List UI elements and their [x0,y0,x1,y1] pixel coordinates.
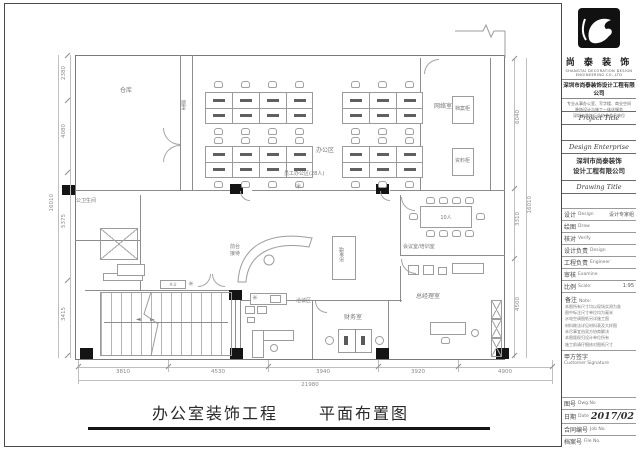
column-block [62,185,75,195]
row-job-no: 合同编号 Job No. [562,423,636,435]
row-engineer: 工程负责 Engineer [562,256,636,268]
chair [241,128,250,135]
row-label-en: Customer Signature [564,361,609,366]
row-label-en: Examine [578,272,598,277]
chair [426,230,435,237]
row-design: 设计 Design 设计专家组 [562,208,636,220]
row-examine: 审核 Examine [562,268,636,280]
dim-label: 3940 [316,370,330,376]
chair [214,128,223,135]
desk-divider [355,329,356,353]
enterprise-name: 深圳市尚泰装饰 设计工程有限公司 [562,154,636,180]
chair-row [205,128,313,135]
row-label: 设计负责 [564,246,588,255]
chair [325,336,334,345]
dim-total-label: 16010 [50,194,56,212]
room-label-office: 办公区 [316,148,334,155]
chair [270,344,278,352]
room-label-meeting: 会议室/培训室 [403,245,435,251]
fan-icon: ✳ [188,281,194,288]
chair [351,81,360,88]
monitor [361,336,365,345]
chair [441,337,450,344]
chair [241,181,250,188]
row-label-en: Design [578,212,594,217]
chair-row [342,81,423,88]
column-block [80,348,93,359]
row-label-en: Scale: [578,284,592,289]
row-label-en: Engineer [590,260,610,265]
row-scale: 比例 Scale: 1:95 [562,280,636,292]
brand-name: 尚 泰 装 饰 [562,55,636,68]
sink [270,295,281,303]
wall [400,255,505,256]
chair [439,230,448,237]
cabinet [491,300,502,319]
notes-label-en: Note: [579,299,591,304]
chair [268,128,277,135]
enterprise-line: 深圳市尚泰装饰 [562,157,636,167]
row-label-en: File No. [584,439,600,444]
title-underline [88,427,490,430]
room-label-corridor: 走廊 [182,100,188,110]
desk-bank [342,92,423,124]
room-label-network: 网络室 [434,104,452,111]
wall [75,190,238,191]
chair-row [205,137,313,144]
armchair [245,306,255,314]
equipment-unit: A.U [160,280,186,289]
row-label: 审核 [564,270,576,279]
row-label-en: Draw [578,224,590,229]
wall [490,58,491,190]
armchair [423,265,434,275]
conference-table: 10人 [420,206,472,228]
dim-label: 3310 [516,212,522,226]
chair [214,81,223,88]
stair-arrow-left-icon: ◄ [136,317,141,323]
desk-bank [205,92,313,124]
dim-label: 4530 [211,370,225,376]
row-label: 合同编号 [564,425,588,434]
chair [375,336,384,345]
cabinet-label: 资料柜 [455,159,470,165]
row-signature: 甲方签字 Customer Signature [562,350,636,367]
drawing-title: 办公室装饰工程 平面布置图 [0,400,561,424]
side-table [117,264,145,276]
brand-logo-area: 尚 泰 装 饰 SHANGTAI DECORATION DESIGN ENGIN… [562,3,636,111]
fan-icon: ✳ [252,295,258,302]
date-value: 2017/02 [591,411,634,422]
staircase [100,292,232,356]
row-label: 图号 [564,399,576,408]
room-label-reception: 前台 [230,245,240,251]
chair [405,81,414,88]
project-name: 办公室装饰工程 [152,404,278,423]
wall [85,290,235,291]
room-label-logo-wall: 形象墙 [340,247,346,262]
dim-label: 4080 [62,124,68,138]
chair [295,137,304,144]
chair [351,128,360,135]
row-value: 设计专家组 [606,211,634,218]
chair [465,197,474,204]
chair [378,128,387,135]
row-label-en: Verify [578,236,591,241]
row-dwg-no: 图号 Dwg.No [562,397,636,409]
dim-total-label: 16010 [528,196,534,214]
armchair [257,306,267,314]
chair [214,137,223,144]
row-label-en: Date [578,414,589,419]
room-label-storage: 仓库 [120,88,132,95]
cabinet [491,338,502,357]
row-label: 工程负责 [564,258,588,267]
dim-label: 2380 [62,66,68,80]
wall [390,190,505,191]
dimension-line [58,55,59,358]
chair [351,181,360,188]
chair [378,81,387,88]
chair [295,81,304,88]
chair-row [205,81,313,88]
dimension-line [78,367,552,368]
chair [426,197,435,204]
row-label: 档案号 [564,437,582,446]
fan-icon: ✳ [295,183,302,191]
row-label: 设计 [564,210,576,219]
row-verify: 核对 Verify [562,232,636,244]
wall [180,55,181,191]
wall [312,300,313,359]
wall [400,266,401,302]
chair [268,81,277,88]
dim-label: 3415 [62,307,68,321]
column-block [376,348,389,359]
drawing-title-box [562,194,636,208]
row-label-en: Dwg.No [578,401,596,406]
chair [405,181,414,188]
chair-row [342,128,423,135]
chair [214,181,223,188]
section-header-drawing: Drawing Title [562,180,636,194]
dim-label: 4500 [516,297,522,311]
dimension-line [78,380,552,381]
chair [378,181,387,188]
room-label-reception2: 接待 [230,252,240,258]
elevator [100,228,138,260]
brand-logo [577,7,621,49]
chair [241,137,250,144]
drawing-name: 平面布置图 [319,404,409,423]
enterprise-line: 设计工程有限公司 [562,167,636,177]
row-label-en: Job No. [590,427,606,432]
chair [268,137,277,144]
notes-header: 备注 Note: [565,295,633,304]
chair [295,128,304,135]
stool [471,329,479,337]
row-date: 日期 Date 2017/02 [562,409,636,423]
dim-total-label: 21980 [301,383,319,389]
equipment-label: A.U [170,282,177,287]
chair [409,213,418,220]
dim-label: 3920 [411,370,425,376]
dim-label: 6040 [516,110,522,124]
room-label-office-count: 员工办公区(28人) [284,172,324,178]
room-label-gm: 总经理室 [416,294,440,301]
table-capacity-label: 10人 [440,214,451,221]
coffee-table [438,267,447,275]
l-desk [252,330,264,358]
section-header-enterprise: Design Enterprise [562,140,636,154]
dim-label: 4900 [498,370,512,376]
dimension-line [70,55,71,358]
cabinet-label: 档案柜 [455,107,470,113]
row-label: 比例 [564,282,576,291]
notes-label: 备注 [565,297,577,304]
monitor [344,336,348,345]
chair [452,230,461,237]
cabinet [491,319,502,338]
chair-row [342,181,423,188]
scale-value: 1:95 [620,283,634,289]
desk-bank [342,146,423,178]
chair [241,81,250,88]
chair [405,137,414,144]
chair [378,137,387,144]
row-file-no: 档案号 File No. [562,435,636,447]
room-label-restroom: 公卫生间 [76,199,96,205]
row-draw: 绘图 Draw [562,220,636,232]
row-label: 甲方签字 [564,352,588,361]
chair [452,197,461,204]
row-design-lead: 设计负责 Design [562,244,636,256]
stair-rail [104,322,228,323]
row-label: 日期 [564,412,576,421]
row-label-en: Design [590,248,606,253]
dim-label: 3810 [116,370,130,376]
chair [439,197,448,204]
section-header-project: Project Title [562,111,636,125]
dimension-line [514,58,515,358]
notes-section: 备注 Note: 本图所有尺寸均以现场实测为准 图中标注尺寸单位均为毫米 水电空… [562,292,636,351]
coffee-table [247,317,255,323]
room-label-finance: 财务室 [344,315,362,322]
title-block: 尚 泰 装 饰 SHANGTAI DECORATION DESIGN ENGIN… [561,3,636,447]
project-title-box [562,125,636,140]
chair-row [342,137,423,144]
wall [400,195,401,255]
row-label: 绘图 [564,222,576,231]
signature-box [562,367,636,397]
stair-arrow-right-icon: ► [150,317,155,323]
chair [476,213,485,220]
sofa [452,263,484,274]
wall [252,190,378,191]
chair [268,181,277,188]
room-label-negotiation: 洽谈区 [296,299,311,305]
desk [430,322,466,335]
company-name: 深圳市尚泰装饰设计工程有限公司 [562,79,636,99]
dim-label: 5375 [62,214,68,228]
wall [192,55,193,191]
brand-name-en: SHANGTAI DECORATION DESIGN ENGINEERING C… [562,69,636,77]
chair [351,137,360,144]
note-line: 施工前请仔细核对图纸尺寸 [565,342,633,348]
chair [465,230,474,237]
row-label: 核对 [564,234,576,243]
chair [405,128,414,135]
